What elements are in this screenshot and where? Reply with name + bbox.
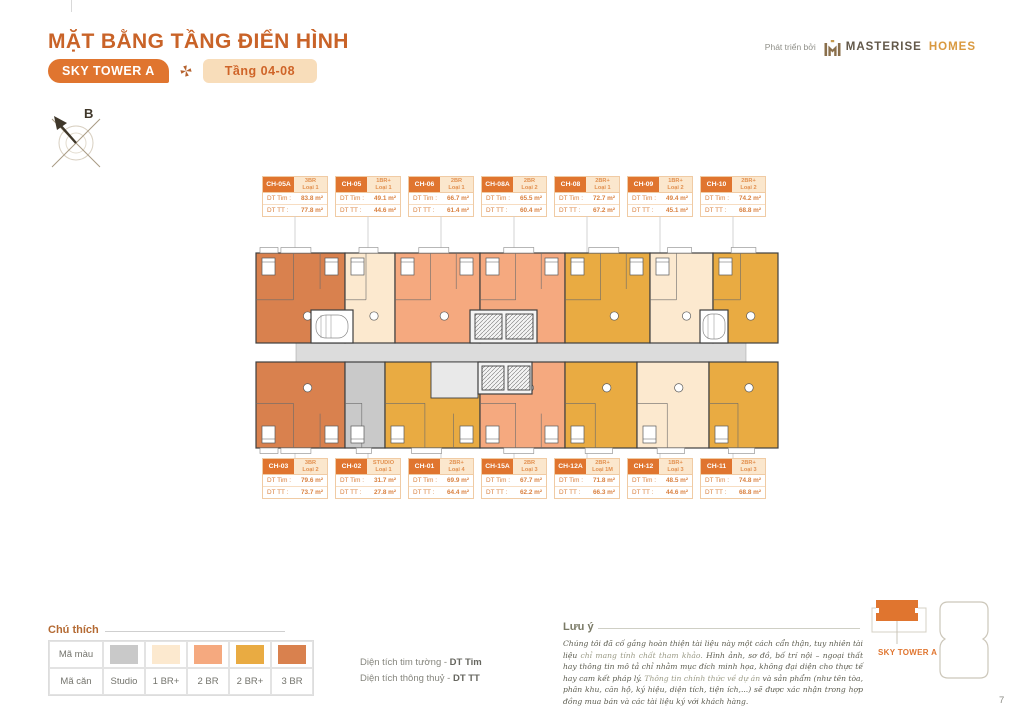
legend-row2-label: Mã căn xyxy=(49,668,103,695)
unit-type-variant: Loại 1 xyxy=(448,185,464,192)
legend-swatch-1brp xyxy=(145,641,187,668)
dt-tim-label: DT Tim : xyxy=(559,195,583,202)
floor-plan-svg xyxy=(251,216,791,458)
unit-card-header: CH-033BRLoại 2 xyxy=(263,459,327,475)
unit-card-header: CH-121BR+Loại 3 xyxy=(628,459,692,475)
dt-tt-row: DT TT :67.2 m² xyxy=(555,204,619,216)
unit-card-ch-05a: CH-05A3BRLoại 1 DT Tim :83.8 m² DT TT :7… xyxy=(262,176,328,217)
unit-code: CH-03 xyxy=(263,459,294,474)
elevator-core-upper xyxy=(470,310,537,343)
unit-type: 2BRLoại 1 xyxy=(440,177,473,192)
dt-tim-label: DT Tim : xyxy=(340,477,364,484)
unit-type: 2BR+Loại 2 xyxy=(732,177,765,192)
dt-tt-row: DT TT :68.8 m² xyxy=(701,486,765,498)
dt-tim-row: DT Tim :48.5 m² xyxy=(628,475,692,486)
unit-type-variant: Loại 1 xyxy=(302,185,318,192)
dt-tt-label: DT TT : xyxy=(486,207,507,214)
unit-code: CH-05A xyxy=(263,177,294,192)
dt-tim-row: DT Tim :72.7 m² xyxy=(555,193,619,204)
unit-card-header: CH-051BR+Loại 1 xyxy=(336,177,400,193)
dt-tim-label: DT Tim : xyxy=(486,477,510,484)
unit-card-ch-10: CH-102BR+Loại 2 DT Tim :74.2 m² DT TT :6… xyxy=(700,176,766,217)
dt-tim-row: DT Tim :49.1 m² xyxy=(336,193,400,204)
dt-tim-value: 69.9 m² xyxy=(447,477,469,484)
dt-tim-row: DT Tim :74.8 m² xyxy=(701,475,765,486)
dt-tt-value: 73.7 m² xyxy=(301,489,323,496)
plan-unit-ch-12a xyxy=(565,362,637,454)
dt-tim-value: 49.1 m² xyxy=(374,195,396,202)
unit-card-header: CH-062BRLoại 1 xyxy=(409,177,473,193)
dt-tt-value: 44.6 m² xyxy=(374,207,396,214)
dt-tt-label: DT TT : xyxy=(632,207,653,214)
definition-dt-tim: Diện tích tim tường - DT Tim xyxy=(360,655,482,671)
unit-card-ch-12a: CH-12A2BR+Loại 1M DT Tim :71.8 m² DT TT … xyxy=(554,458,620,499)
blossom-icon xyxy=(179,64,193,78)
legend-name-1brp: 1 BR+ xyxy=(145,668,187,695)
unit-type: 3BRLoại 2 xyxy=(294,459,327,474)
dt-tim-row: DT Tim :49.4 m² xyxy=(628,193,692,204)
dt-tt-row: DT TT :44.6 m² xyxy=(628,486,692,498)
dt-tt-row: DT TT :62.2 m² xyxy=(482,486,546,498)
stair-core-right xyxy=(700,310,728,343)
unit-card-ch-12: CH-121BR+Loại 3 DT Tim :48.5 m² DT TT :4… xyxy=(627,458,693,499)
dt-tim-row: DT Tim :79.6 m² xyxy=(263,475,327,486)
dt-tim-label: DT Tim : xyxy=(705,477,729,484)
unit-code: CH-15A xyxy=(482,459,513,474)
unit-type-variant: Loại 4 xyxy=(448,467,464,474)
dt-tt-row: DT TT :60.4 m² xyxy=(482,204,546,216)
dt-tt-label: DT TT : xyxy=(267,207,288,214)
dt-tim-value: 74.8 m² xyxy=(739,477,761,484)
dt-tim-label: DT Tim : xyxy=(267,195,291,202)
unit-code: CH-01 xyxy=(409,459,440,474)
dt-tim-value: 74.2 m² xyxy=(739,195,761,202)
dt-tt-row: DT TT :66.3 m² xyxy=(555,486,619,498)
crop-mark xyxy=(71,0,72,12)
unit-type-variant: Loại 1 xyxy=(375,467,391,474)
elevator-lobby xyxy=(431,362,478,398)
floor-badge: Tầng 04-08 xyxy=(203,59,317,83)
unit-card-ch-05: CH-051BR+Loại 1 DT Tim :49.1 m² DT TT :4… xyxy=(335,176,401,217)
dt-tt-value: 68.8 m² xyxy=(739,207,761,214)
dt-tt-row: DT TT :73.7 m² xyxy=(263,486,327,498)
legend-swatch-2br xyxy=(187,641,229,668)
brand-logo: MASTERISE HOMES xyxy=(824,38,976,56)
legend-title: Chú thích xyxy=(48,624,99,636)
dt-tt-value: 62.2 m² xyxy=(520,489,542,496)
unit-card-header: CH-082BR+Loại 1 xyxy=(555,177,619,193)
unit-type: 1BR+Loại 1 xyxy=(367,177,400,192)
unit-card-ch-09: CH-091BR+Loại 2 DT Tim :49.4 m² DT TT :4… xyxy=(627,176,693,217)
dt-tt-label: DT TT : xyxy=(340,207,361,214)
legend-name-studio: Studio xyxy=(103,668,145,695)
dt-tt-row: DT TT :64.4 m² xyxy=(409,486,473,498)
dt-tt-label: DT TT : xyxy=(486,489,507,496)
corridor xyxy=(296,343,746,362)
dt-tt-row: DT TT :44.6 m² xyxy=(336,204,400,216)
unit-type: 2BRLoại 2 xyxy=(513,177,546,192)
legend-swatch-2brp xyxy=(229,641,271,668)
unit-type: 2BR+Loại 1M xyxy=(586,459,619,474)
dt-tim-value: 71.8 m² xyxy=(593,477,615,484)
plan-unit-ch-11 xyxy=(709,362,778,454)
dt-tim-value: 65.5 m² xyxy=(520,195,542,202)
unit-type-variant: Loại 3 xyxy=(667,467,683,474)
dt-tim-row: DT Tim :66.7 m² xyxy=(409,193,473,204)
unit-card-header: CH-02STUDIOLoại 1 xyxy=(336,459,400,475)
dt-tt-label: DT TT : xyxy=(705,207,726,214)
dt-tim-label: DT Tim : xyxy=(413,195,437,202)
brand-name-homes: HOMES xyxy=(929,41,976,53)
unit-type-variant: Loại 2 xyxy=(740,185,756,192)
plan-unit-ch-03 xyxy=(256,362,345,454)
dt-tim-value: 83.8 m² xyxy=(301,195,323,202)
definition-dt-tt: Diện tích thông thuỷ - DT TT xyxy=(360,671,482,687)
unit-code: CH-09 xyxy=(628,177,659,192)
dt-tt-value: 68.8 m² xyxy=(739,489,761,496)
dt-tim-row: DT Tim :83.8 m² xyxy=(263,193,327,204)
unit-card-header: CH-012BR+Loại 4 xyxy=(409,459,473,475)
unit-type-variant: Loại 3 xyxy=(740,467,756,474)
plan-unit-ch-12 xyxy=(637,362,709,454)
unit-type-variant: Loại 2 xyxy=(302,467,318,474)
note-body: Chúng tôi đã cố gắng hoàn thiện tài liệu… xyxy=(563,638,863,708)
dt-tt-label: DT TT : xyxy=(340,489,361,496)
unit-card-header: CH-12A2BR+Loại 1M xyxy=(555,459,619,475)
unit-code: CH-08A xyxy=(482,177,513,192)
developer-row: Phát triển bởi MASTERISE HOMES xyxy=(765,38,976,56)
brand-name-masterise: MASTERISE xyxy=(846,41,922,53)
plan-unit-ch-02 xyxy=(345,362,385,454)
unit-type-variant: Loại 1 xyxy=(375,185,391,192)
unit-card-ch-08: CH-082BR+Loại 1 DT Tim :72.7 m² DT TT :6… xyxy=(554,176,620,217)
dt-tim-value: 79.6 m² xyxy=(301,477,323,484)
dt-tim-row: DT Tim :31.7 m² xyxy=(336,475,400,486)
unit-type: 2BR+Loại 1 xyxy=(586,177,619,192)
dt-tt-label: DT TT : xyxy=(705,489,726,496)
dt-tt-value: 27.8 m² xyxy=(374,489,396,496)
dt-tim-label: DT Tim : xyxy=(340,195,364,202)
dt-tim-row: DT Tim :71.8 m² xyxy=(555,475,619,486)
dt-tim-value: 67.7 m² xyxy=(520,477,542,484)
unit-code: CH-12A xyxy=(555,459,586,474)
dt-tt-label: DT TT : xyxy=(632,489,653,496)
dt-tim-row: DT Tim :67.7 m² xyxy=(482,475,546,486)
stair-core-left xyxy=(311,310,353,343)
dt-tt-row: DT TT :45.1 m² xyxy=(628,204,692,216)
dt-tt-label: DT TT : xyxy=(559,207,580,214)
unit-type: 1BR+Loại 3 xyxy=(659,459,692,474)
unit-type: 2BR+Loại 4 xyxy=(440,459,473,474)
dt-tt-value: 60.4 m² xyxy=(520,207,542,214)
unit-card-ch-15a: CH-15A2BRLoại 3 DT Tim :67.7 m² DT TT :6… xyxy=(481,458,547,499)
unit-code: CH-08 xyxy=(555,177,586,192)
badge-row: SKY TOWER A Tầng 04-08 xyxy=(48,59,317,83)
dt-tim-label: DT Tim : xyxy=(705,195,729,202)
unit-code: CH-11 xyxy=(701,459,732,474)
dt-tt-row: DT TT :77.8 m² xyxy=(263,204,327,216)
legend-table: Mã màu Mã căn Studio 1 BR+ 2 BR 2 BR+ 3 … xyxy=(48,640,314,696)
site-minimap: SKY TOWER A xyxy=(868,596,1018,696)
dt-tt-row: DT TT :61.4 m² xyxy=(409,204,473,216)
dt-tt-row: DT TT :68.8 m² xyxy=(701,204,765,216)
legend-name-3br: 3 BR xyxy=(271,668,313,695)
legend-name-2brp: 2 BR+ xyxy=(229,668,271,695)
dt-tt-value: 44.6 m² xyxy=(666,489,688,496)
dt-tt-label: DT TT : xyxy=(413,207,434,214)
compass-label: B xyxy=(84,106,93,121)
unit-type-variant: Loại 1 xyxy=(594,185,610,192)
dt-tim-value: 31.7 m² xyxy=(374,477,396,484)
legend-name-2br: 2 BR xyxy=(187,668,229,695)
dt-tt-value: 61.4 m² xyxy=(447,207,469,214)
unit-card-header: CH-112BR+Loại 3 xyxy=(701,459,765,475)
dt-tim-label: DT Tim : xyxy=(632,477,656,484)
unit-type-variant: Loại 2 xyxy=(667,185,683,192)
unit-card-header: CH-05A3BRLoại 1 xyxy=(263,177,327,193)
unit-code: CH-06 xyxy=(409,177,440,192)
developer-prefix: Phát triển bởi xyxy=(765,42,816,52)
unit-card-ch-11: CH-112BR+Loại 3 DT Tim :74.8 m² DT TT :6… xyxy=(700,458,766,499)
unit-card-header: CH-15A2BRLoại 3 xyxy=(482,459,546,475)
floor-plan xyxy=(251,216,791,458)
legend-swatch-studio xyxy=(103,641,145,668)
unit-card-ch-08a: CH-08A2BRLoại 2 DT Tim :65.5 m² DT TT :6… xyxy=(481,176,547,217)
minimap-label: SKY TOWER A xyxy=(878,648,937,657)
unit-card-ch-01: CH-012BR+Loại 4 DT Tim :69.9 m² DT TT :6… xyxy=(408,458,474,499)
unit-card-header: CH-091BR+Loại 2 xyxy=(628,177,692,193)
dt-tt-value: 64.4 m² xyxy=(447,489,469,496)
dt-tim-row: DT Tim :74.2 m² xyxy=(701,193,765,204)
unit-code: CH-10 xyxy=(701,177,732,192)
unit-card-ch-03: CH-033BRLoại 2 DT Tim :79.6 m² DT TT :73… xyxy=(262,458,328,499)
site-minimap-graphic xyxy=(868,596,1018,696)
unit-type: 2BRLoại 3 xyxy=(513,459,546,474)
unit-card-header: CH-08A2BRLoại 2 xyxy=(482,177,546,193)
masterise-logo-icon xyxy=(824,38,841,56)
legend-rule xyxy=(105,631,285,632)
dt-tim-label: DT Tim : xyxy=(267,477,291,484)
tower-a-highlight xyxy=(876,600,918,621)
unit-card-header: CH-102BR+Loại 2 xyxy=(701,177,765,193)
compass-north-icon: B xyxy=(42,103,112,171)
plan-unit-ch-08 xyxy=(565,248,650,344)
unit-code: CH-05 xyxy=(336,177,367,192)
page-title: MẶT BẰNG TẦNG ĐIỂN HÌNH xyxy=(48,30,349,54)
unit-type: 3BRLoại 1 xyxy=(294,177,327,192)
dt-tim-value: 72.7 m² xyxy=(593,195,615,202)
dt-tim-value: 48.5 m² xyxy=(666,477,688,484)
tower-badge: SKY TOWER A xyxy=(48,59,169,83)
unit-type-variant: Loại 1M xyxy=(592,467,613,474)
dt-tt-value: 45.1 m² xyxy=(666,207,688,214)
dt-tt-label: DT TT : xyxy=(267,489,288,496)
unit-type-variant: Loại 3 xyxy=(521,467,537,474)
area-definitions: Diện tích tim tường - DT Tim Diện tích t… xyxy=(360,655,482,687)
unit-code: CH-12 xyxy=(628,459,659,474)
note-rule xyxy=(598,628,860,629)
dt-tim-row: DT Tim :65.5 m² xyxy=(482,193,546,204)
unit-type: 1BR+Loại 2 xyxy=(659,177,692,192)
other-tower-outline xyxy=(940,602,988,678)
unit-card-ch-02: CH-02STUDIOLoại 1 DT Tim :31.7 m² DT TT … xyxy=(335,458,401,499)
unit-card-ch-06: CH-062BRLoại 1 DT Tim :66.7 m² DT TT :61… xyxy=(408,176,474,217)
dt-tt-value: 77.8 m² xyxy=(301,207,323,214)
dt-tt-value: 66.3 m² xyxy=(593,489,615,496)
page-number: 7 xyxy=(999,695,1004,706)
unit-type: 2BR+Loại 3 xyxy=(732,459,765,474)
dt-tt-value: 67.2 m² xyxy=(593,207,615,214)
dt-tim-label: DT Tim : xyxy=(559,477,583,484)
legend-swatch-3br xyxy=(271,641,313,668)
dt-tt-row: DT TT :27.8 m² xyxy=(336,486,400,498)
unit-type-variant: Loại 2 xyxy=(521,185,537,192)
dt-tt-label: DT TT : xyxy=(413,489,434,496)
unit-code: CH-02 xyxy=(336,459,367,474)
plan-unit-ch-06 xyxy=(395,248,480,344)
dt-tt-label: DT TT : xyxy=(559,489,580,496)
unit-type: STUDIOLoại 1 xyxy=(367,459,400,474)
dt-tim-row: DT Tim :69.9 m² xyxy=(409,475,473,486)
legend-row1-label: Mã màu xyxy=(49,641,103,668)
dt-tim-label: DT Tim : xyxy=(413,477,437,484)
elevator-core-lower xyxy=(431,362,532,398)
dt-tim-value: 66.7 m² xyxy=(447,195,469,202)
dt-tim-value: 49.4 m² xyxy=(666,195,688,202)
dt-tim-label: DT Tim : xyxy=(632,195,656,202)
dt-tim-label: DT Tim : xyxy=(486,195,510,202)
note-title: Lưu ý xyxy=(563,621,594,633)
